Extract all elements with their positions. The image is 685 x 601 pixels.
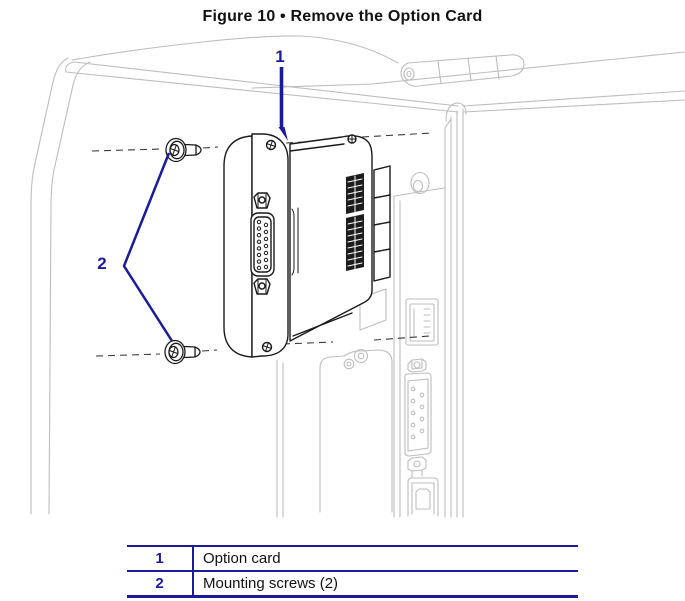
left-panel-inner-edge <box>49 62 90 514</box>
mounting-screws <box>165 139 201 364</box>
manual-figure-page: Figure 10 • Remove the Option Card <box>0 0 685 601</box>
legend-row-2-number: 2 <box>127 572 194 595</box>
pin-header <box>346 173 364 271</box>
legend-row-1-number: 1 <box>127 547 194 570</box>
top-cover-far-edge <box>72 36 398 63</box>
top-back-edge-chamfer <box>66 62 458 112</box>
round-port-icon <box>411 173 429 194</box>
callout-1-label: 1 <box>275 47 284 66</box>
option-slot-cutout <box>320 350 392 513</box>
callout-2-label: 2 <box>97 254 106 273</box>
top-right-edge-1 <box>463 91 685 106</box>
screw-icon-bottom <box>165 341 200 364</box>
legend-row-1-description: Option card <box>194 547 578 570</box>
callout-2: 2 <box>97 153 172 341</box>
top-back-edge <box>74 62 458 106</box>
legend-row-1: 1 Option card <box>127 547 578 570</box>
hex-standoff-top <box>254 193 270 208</box>
port-panel-left-edge <box>394 188 444 517</box>
top-face-far-line <box>252 52 685 88</box>
bracket-flange <box>224 136 252 357</box>
option-card <box>224 134 390 357</box>
figure-illustration: 1 2 <box>0 0 685 601</box>
legend-row-2: 2 Mounting screws (2) <box>127 570 578 595</box>
callout-1-arrow <box>279 127 289 141</box>
ethernet-port-icon <box>406 299 438 345</box>
panel-seam <box>445 119 451 517</box>
card-edge-connector <box>374 166 390 281</box>
screw-icon-top <box>166 139 201 162</box>
top-right-edge-2 <box>463 100 685 112</box>
usb-port-icon <box>408 478 438 516</box>
hex-standoff-bottom <box>254 279 270 294</box>
legend-table: 1 Option card 2 Mounting screws (2) <box>127 545 578 598</box>
serial-port-icon <box>405 359 431 477</box>
option-panel-left-edge <box>277 360 283 517</box>
legend-row-2-description: Mounting screws (2) <box>194 572 578 595</box>
